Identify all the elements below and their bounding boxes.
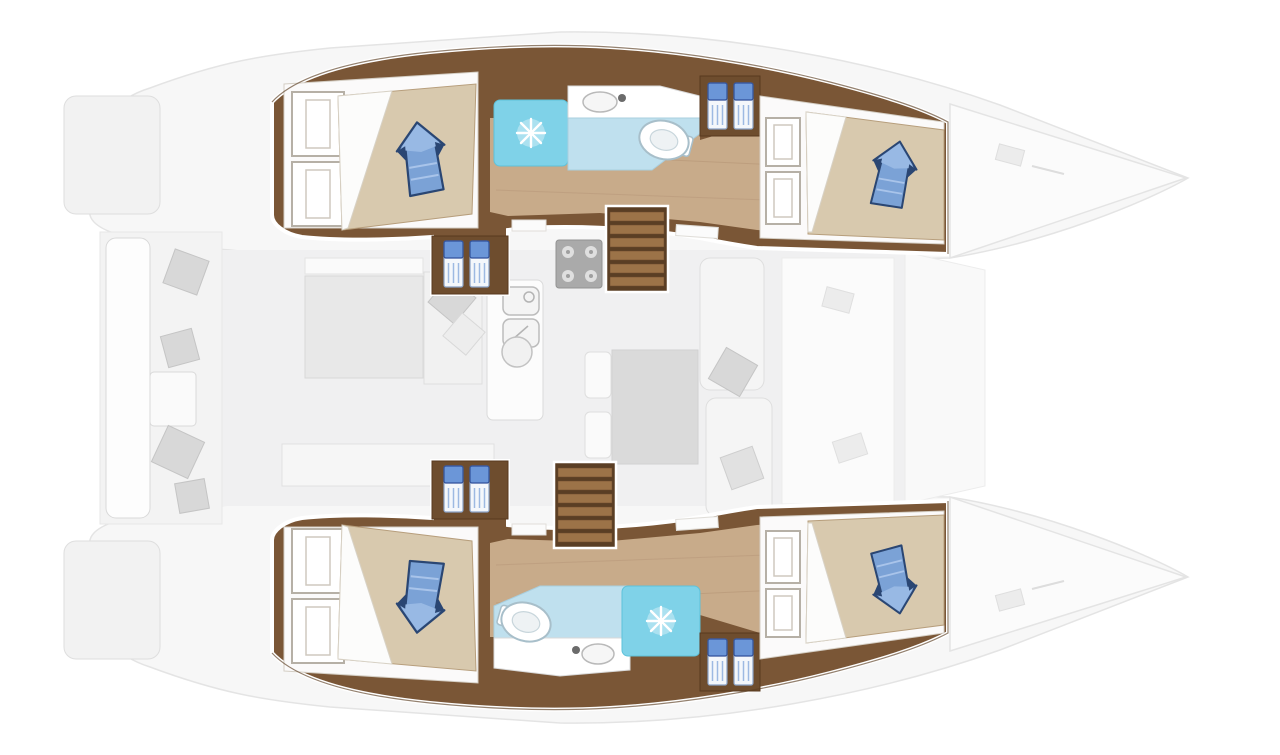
washbasin bbox=[582, 644, 614, 664]
dinette-table bbox=[612, 350, 698, 464]
faucet-icon bbox=[618, 94, 626, 102]
port-companionway-steps bbox=[432, 236, 508, 294]
shower-head-icon bbox=[517, 119, 545, 147]
wardrobe bbox=[766, 531, 800, 637]
dinette-seat bbox=[585, 412, 611, 458]
foredeck bbox=[905, 252, 985, 504]
port-fore-cabin bbox=[760, 96, 944, 244]
starboard-aft-cabin bbox=[284, 525, 478, 683]
port-outboard-steps bbox=[700, 76, 760, 136]
starboard-staircase bbox=[554, 462, 616, 548]
shower-head-icon bbox=[647, 607, 675, 635]
port-bow bbox=[950, 104, 1186, 258]
floor-plan-canvas bbox=[0, 0, 1280, 755]
dinette-seat bbox=[585, 352, 611, 398]
cabin-door bbox=[676, 517, 719, 531]
starboard-companionway-steps bbox=[432, 461, 508, 519]
starboard-fore-cabin bbox=[760, 511, 944, 659]
salon-lounge bbox=[305, 276, 423, 378]
salon-sideboard bbox=[305, 258, 423, 274]
wardrobe bbox=[766, 118, 800, 224]
port-staircase bbox=[606, 206, 668, 292]
washbasin bbox=[583, 92, 617, 112]
starboard-bow bbox=[950, 497, 1186, 651]
faucet-icon bbox=[572, 646, 580, 654]
galley-stove-icon bbox=[556, 240, 602, 288]
port-aft-cabin bbox=[284, 72, 478, 230]
port-transom-step bbox=[64, 96, 160, 214]
starboard-outboard-steps bbox=[700, 633, 760, 691]
cockpit-table bbox=[150, 372, 196, 426]
starboard-transom-step bbox=[64, 541, 160, 659]
cabin-door bbox=[512, 220, 546, 231]
cabin-door bbox=[512, 524, 546, 535]
catamaran-floor-plan bbox=[0, 0, 1280, 755]
cockpit-bench bbox=[106, 238, 150, 518]
galley-round-sink-icon bbox=[502, 337, 532, 367]
cabin-door bbox=[676, 225, 719, 239]
